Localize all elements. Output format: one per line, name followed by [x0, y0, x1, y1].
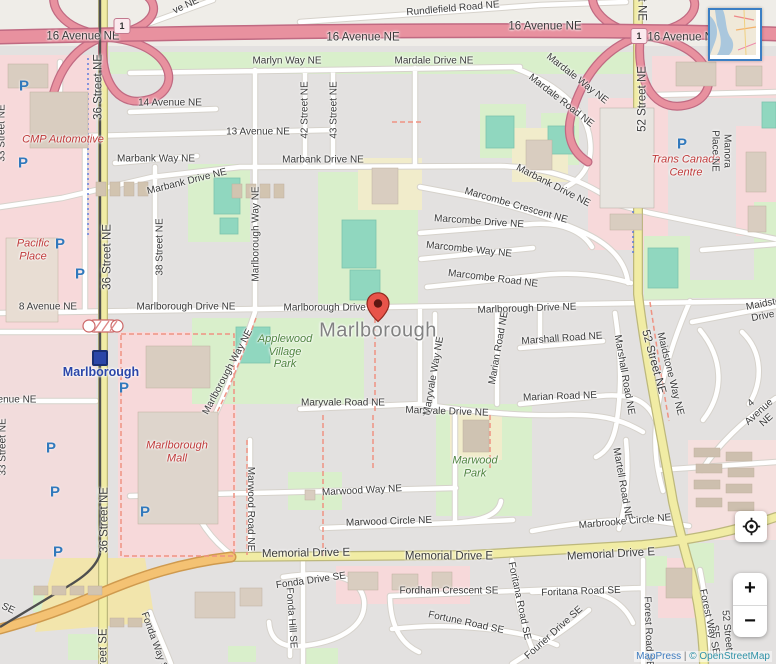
highway-shield: 1 — [114, 18, 131, 34]
marker-pin-icon — [366, 292, 390, 323]
parking-icon: P — [18, 155, 28, 172]
parking-icon: P — [119, 380, 129, 397]
parking-icon: P — [50, 484, 60, 501]
map-marker[interactable] — [366, 292, 390, 328]
parking-icon: P — [53, 544, 63, 561]
attribution: MapPress | © OpenStreetMap — [634, 651, 772, 662]
crosshair-icon — [742, 517, 761, 536]
zoom-in-button[interactable]: + — [733, 573, 767, 605]
parking-icon: P — [140, 504, 150, 521]
parking-icon: P — [19, 78, 29, 95]
zoom-controls: + − — [733, 573, 767, 637]
locate-button[interactable] — [735, 511, 767, 542]
map-artwork — [0, 0, 776, 664]
pedestrian-bridge-icon — [83, 320, 123, 332]
highway-shield: 1 — [631, 28, 648, 44]
map-canvas[interactable]: Rundlefield Road NEve NE16 Avenue NE16 A… — [0, 0, 776, 664]
parking-icon: P — [55, 236, 65, 253]
minimap-art — [710, 10, 756, 55]
zoom-out-button[interactable]: − — [733, 606, 767, 638]
parking-icon: P — [46, 440, 56, 457]
mappress-link[interactable]: MapPress — [636, 651, 681, 662]
attribution-separator: | — [684, 651, 687, 662]
parking-icon: P — [677, 136, 687, 153]
parking-icon: P — [75, 266, 85, 283]
openstreetmap-link[interactable]: © OpenStreetMap — [689, 651, 770, 662]
overview-minimap[interactable] — [708, 8, 762, 61]
